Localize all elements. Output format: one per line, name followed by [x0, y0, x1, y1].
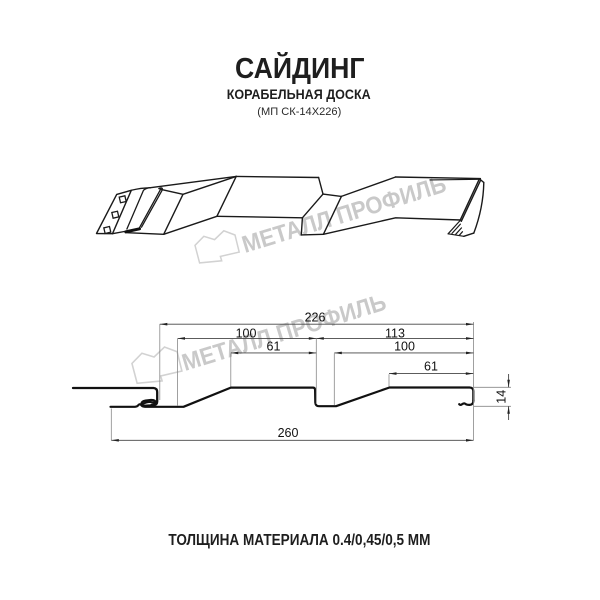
svg-text:61: 61: [424, 360, 438, 374]
svg-text:(МП СК-14Х226): (МП СК-14Х226): [257, 106, 341, 118]
svg-text:61: 61: [267, 340, 281, 354]
svg-text:260: 260: [278, 426, 299, 440]
svg-text:100: 100: [394, 340, 415, 354]
svg-text:100: 100: [236, 327, 257, 341]
svg-text:113: 113: [385, 327, 405, 341]
svg-text:КОРАБЕЛЬНАЯ ДОСКА: КОРАБЕЛЬНАЯ ДОСКА: [227, 87, 371, 102]
svg-text:14: 14: [495, 390, 509, 404]
svg-text:ТОЛЩИНА МАТЕРИАЛА 0.4/0,45/0,5: ТОЛЩИНА МАТЕРИАЛА 0.4/0,45/0,5 ММ: [168, 532, 430, 549]
svg-text:226: 226: [305, 311, 326, 325]
svg-text:САЙДИНГ: САЙДИНГ: [235, 51, 365, 85]
